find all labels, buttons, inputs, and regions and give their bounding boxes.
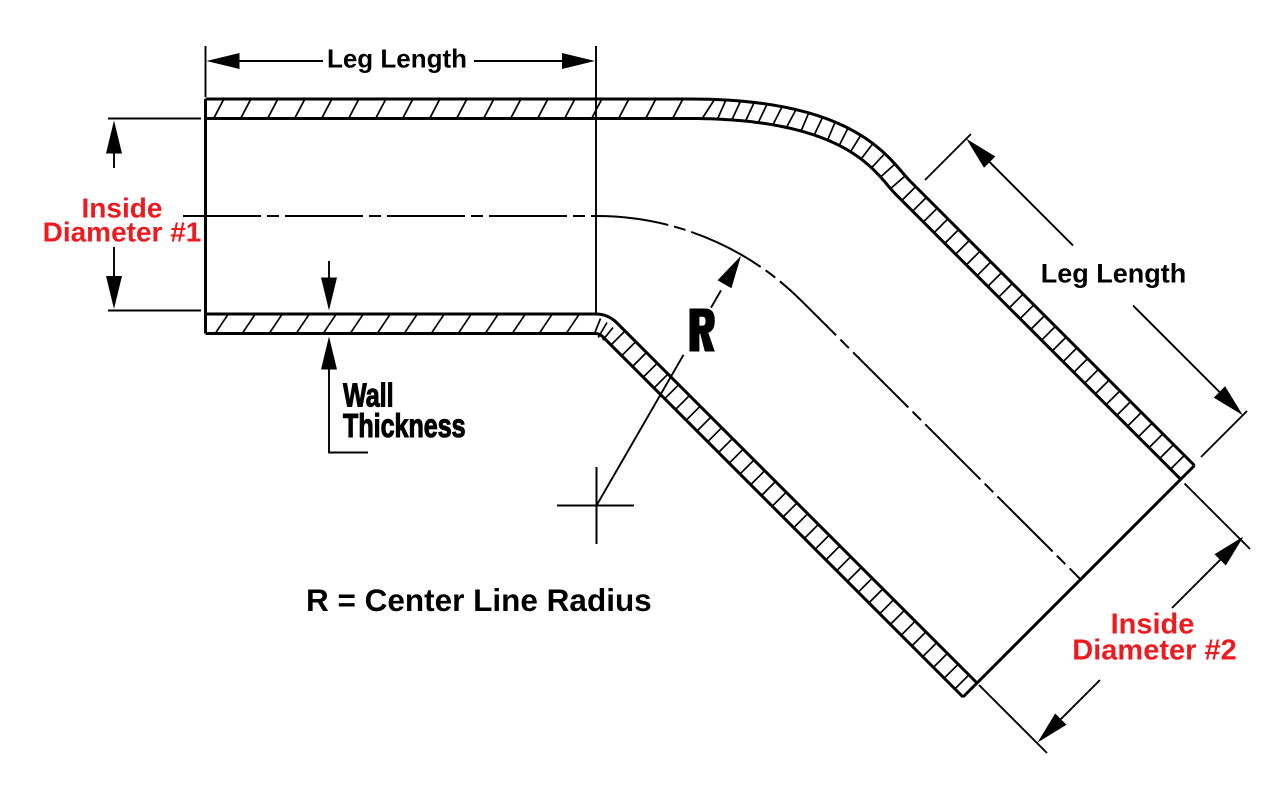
svg-text:Diameter #1: Diameter #1 [43,217,202,248]
svg-text:Leg Length: Leg Length [327,44,467,74]
svg-text:Thickness: Thickness [343,408,466,445]
svg-text:Diameter #2: Diameter #2 [1072,635,1236,667]
svg-text:Leg Length: Leg Length [1041,259,1186,289]
svg-text:R = Center Line Radius: R = Center Line Radius [306,582,652,618]
